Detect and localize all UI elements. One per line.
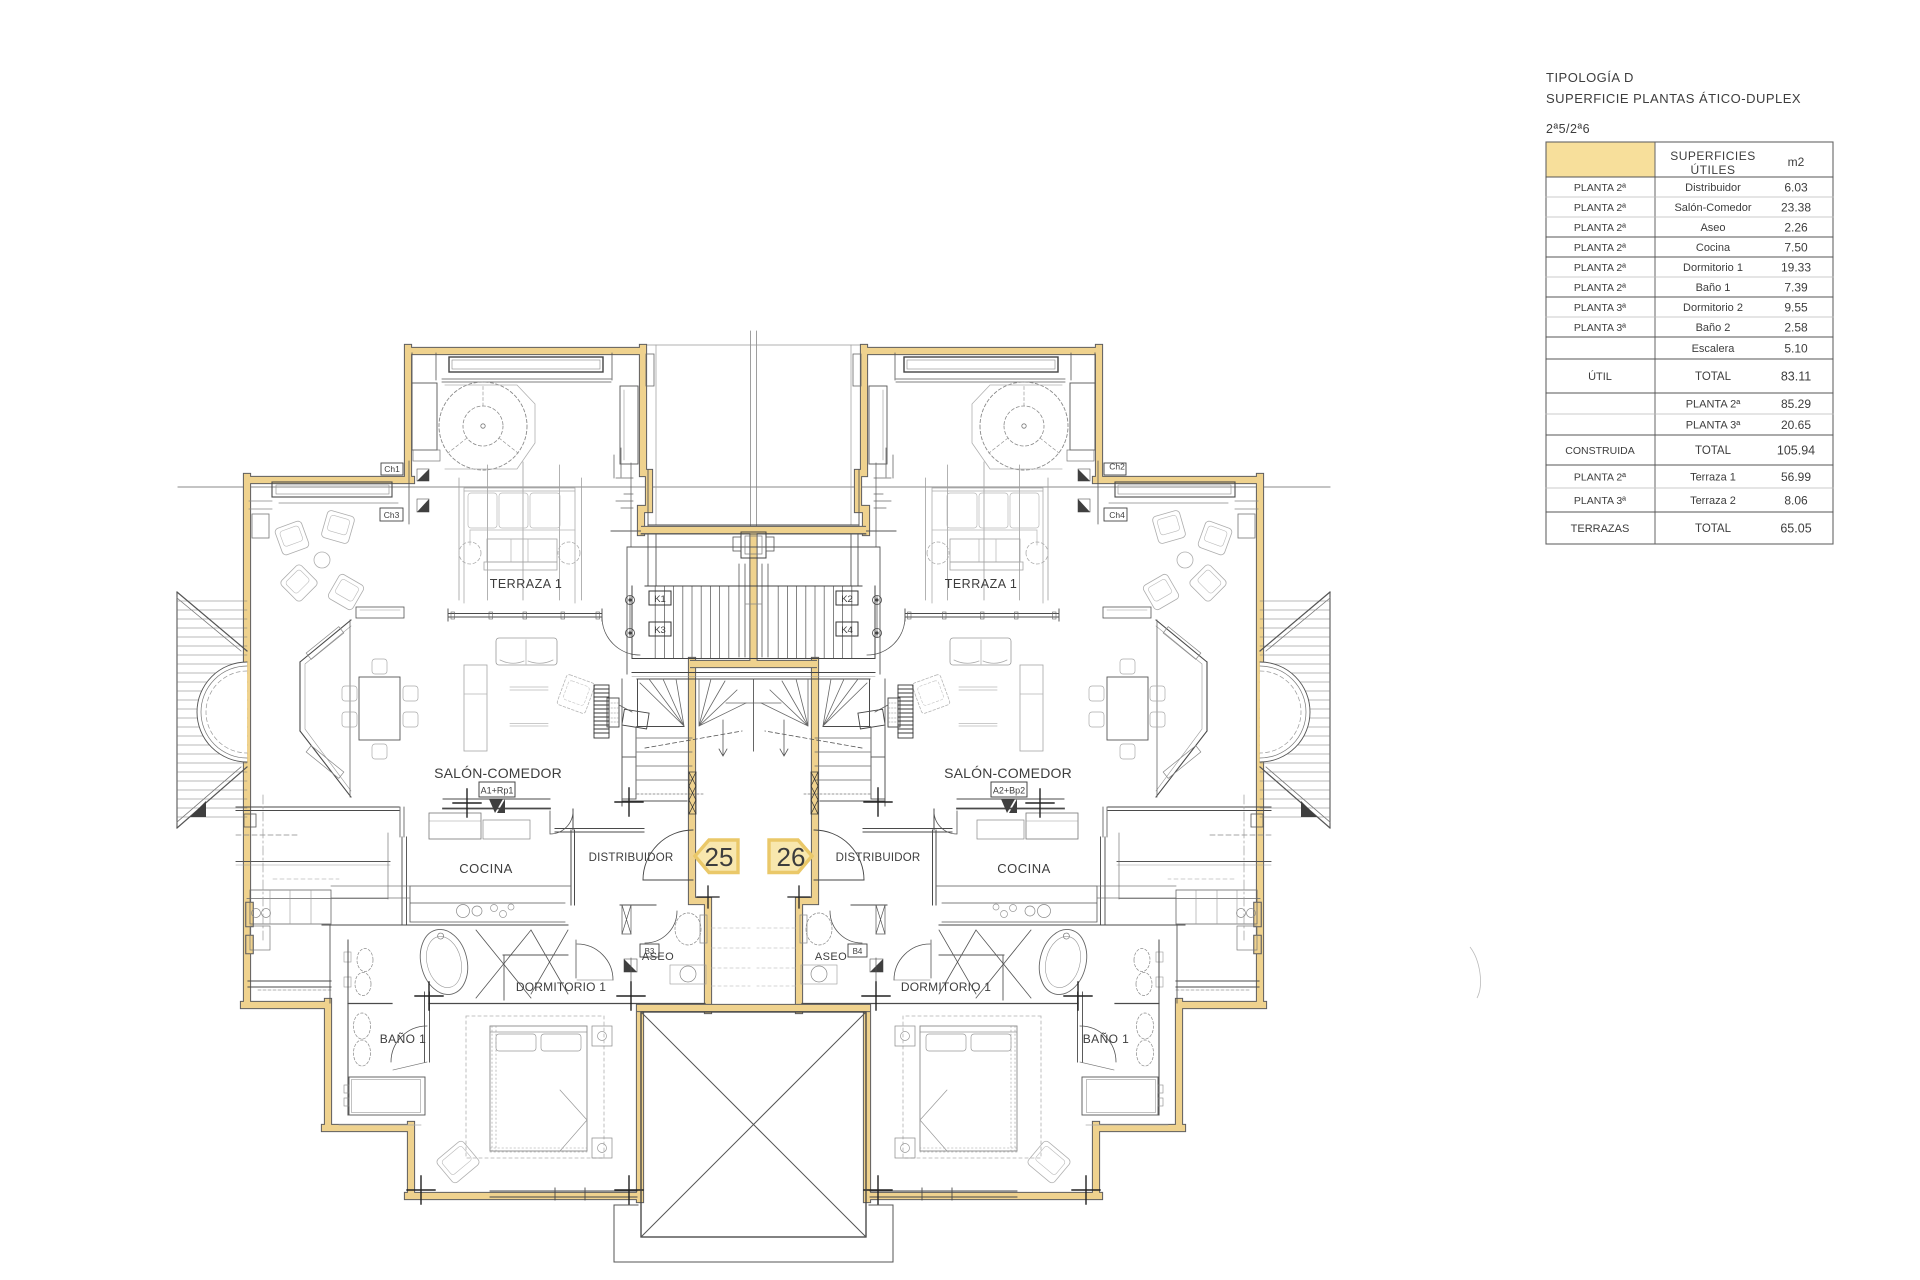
svg-text:ASEO: ASEO — [815, 951, 847, 963]
svg-text:25: 25 — [705, 842, 734, 872]
svg-text:SALÓN-COMEDOR: SALÓN-COMEDOR — [434, 765, 562, 781]
svg-text:CONSTRUIDA: CONSTRUIDA — [1565, 445, 1634, 457]
svg-text:19.33: 19.33 — [1781, 261, 1811, 275]
svg-text:Terraza 1: Terraza 1 — [1690, 472, 1736, 484]
svg-text:PLANTA 2ª: PLANTA 2ª — [1574, 182, 1626, 194]
svg-text:BAÑO 1: BAÑO 1 — [380, 1032, 426, 1046]
svg-text:PLANTA 3ª: PLANTA 3ª — [1686, 420, 1742, 432]
svg-text:TOTAL: TOTAL — [1695, 371, 1732, 383]
svg-text:ÚTILES: ÚTILES — [1690, 162, 1735, 177]
svg-text:Aseo: Aseo — [1700, 222, 1725, 234]
svg-text:26: 26 — [777, 842, 806, 872]
svg-text:Salón-Comedor: Salón-Comedor — [1674, 202, 1751, 214]
svg-text:7.50: 7.50 — [1784, 241, 1808, 255]
svg-text:DORMITORIO 1: DORMITORIO 1 — [901, 980, 991, 994]
svg-text:PLANTA 3ª: PLANTA 3ª — [1574, 495, 1626, 507]
svg-text:5.10: 5.10 — [1784, 342, 1808, 356]
svg-text:K3: K3 — [654, 625, 666, 636]
svg-text:SUPERFICIE PLANTAS ÁTICO-DUPLE: SUPERFICIE PLANTAS ÁTICO-DUPLEX — [1546, 91, 1801, 106]
svg-text:Distribuidor: Distribuidor — [1685, 182, 1741, 194]
svg-text:PLANTA 3ª: PLANTA 3ª — [1574, 322, 1626, 334]
svg-text:TERRAZAS: TERRAZAS — [1571, 523, 1630, 535]
svg-text:83.11: 83.11 — [1781, 370, 1811, 384]
svg-text:Ch3: Ch3 — [384, 510, 400, 520]
svg-text:PLANTA 2ª: PLANTA 2ª — [1574, 262, 1626, 274]
svg-text:Escalera: Escalera — [1692, 343, 1736, 355]
svg-text:TERRAZA 1: TERRAZA 1 — [490, 577, 563, 591]
svg-text:ÚTIL: ÚTIL — [1588, 370, 1612, 383]
svg-text:PLANTA 2ª: PLANTA 2ª — [1574, 472, 1626, 484]
svg-text:2.26: 2.26 — [1784, 221, 1808, 235]
svg-text:2.58: 2.58 — [1784, 321, 1808, 335]
svg-text:TIPOLOGÍA D: TIPOLOGÍA D — [1546, 70, 1634, 85]
svg-text:K1: K1 — [654, 594, 666, 605]
svg-text:K2: K2 — [841, 594, 853, 605]
svg-text:PLANTA 2ª: PLANTA 2ª — [1574, 282, 1626, 294]
svg-text:B4: B4 — [853, 947, 863, 956]
svg-text:K4: K4 — [841, 625, 853, 636]
svg-text:DISTRIBUIDOR: DISTRIBUIDOR — [836, 852, 921, 864]
svg-text:2ª5/2ª6: 2ª5/2ª6 — [1546, 122, 1590, 136]
svg-text:PLANTA 2ª: PLANTA 2ª — [1574, 222, 1626, 234]
svg-text:85.29: 85.29 — [1781, 397, 1811, 411]
svg-text:7.39: 7.39 — [1784, 281, 1808, 295]
svg-text:Cocina: Cocina — [1696, 242, 1731, 254]
svg-text:TOTAL: TOTAL — [1695, 523, 1732, 535]
svg-text:PLANTA 2ª: PLANTA 2ª — [1574, 242, 1626, 254]
svg-text:TERRAZA 1: TERRAZA 1 — [945, 577, 1018, 591]
svg-text:Baño 2: Baño 2 — [1696, 322, 1731, 334]
svg-text:A2+Bp2: A2+Bp2 — [993, 786, 1025, 796]
svg-text:A1+Rp1: A1+Rp1 — [481, 786, 514, 796]
svg-text:m2: m2 — [1788, 155, 1805, 169]
svg-text:SUPERFICIES: SUPERFICIES — [1670, 149, 1756, 163]
svg-text:Ch1: Ch1 — [384, 464, 400, 474]
svg-text:56.99: 56.99 — [1781, 470, 1811, 484]
svg-text:6.03: 6.03 — [1784, 181, 1808, 195]
svg-text:BAÑO 1: BAÑO 1 — [1083, 1032, 1129, 1046]
svg-text:23.38: 23.38 — [1781, 201, 1811, 215]
svg-text:Dormitorio 1: Dormitorio 1 — [1683, 262, 1743, 274]
svg-text:9.55: 9.55 — [1784, 301, 1808, 315]
svg-text:Dormitorio 2: Dormitorio 2 — [1683, 302, 1743, 314]
svg-text:PLANTA 3ª: PLANTA 3ª — [1574, 302, 1626, 314]
svg-text:PLANTA 2ª: PLANTA 2ª — [1686, 399, 1742, 411]
svg-text:SALÓN-COMEDOR: SALÓN-COMEDOR — [944, 765, 1072, 781]
svg-text:DORMITORIO 1: DORMITORIO 1 — [516, 980, 606, 994]
svg-text:DISTRIBUIDOR: DISTRIBUIDOR — [589, 852, 674, 864]
svg-text:TOTAL: TOTAL — [1695, 445, 1732, 457]
svg-text:65.05: 65.05 — [1780, 522, 1811, 536]
svg-text:PLANTA 2ª: PLANTA 2ª — [1574, 202, 1626, 214]
svg-text:COCINA: COCINA — [459, 861, 513, 876]
svg-text:Ch2: Ch2 — [1109, 462, 1125, 472]
svg-text:Baño 1: Baño 1 — [1696, 282, 1731, 294]
svg-text:Ch4: Ch4 — [1109, 510, 1125, 520]
svg-text:105.94: 105.94 — [1777, 444, 1815, 458]
svg-text:20.65: 20.65 — [1781, 418, 1811, 432]
svg-text:Terraza 2: Terraza 2 — [1690, 495, 1736, 507]
svg-text:COCINA: COCINA — [997, 861, 1051, 876]
svg-text:B3: B3 — [645, 947, 655, 956]
svg-text:8.06: 8.06 — [1784, 494, 1808, 508]
